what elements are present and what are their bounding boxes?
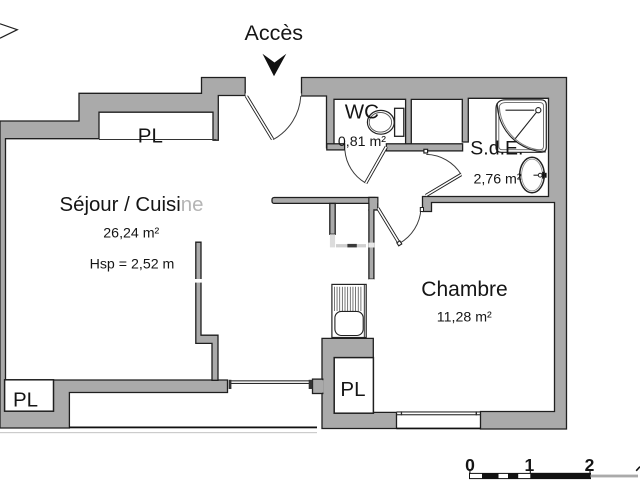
- svg-text:PL: PL: [13, 388, 38, 411]
- svg-text:PL: PL: [340, 378, 365, 401]
- svg-text:Séjour / Cuisine: Séjour / Cuisine: [60, 194, 204, 216]
- svg-text:WC: WC: [345, 100, 379, 123]
- svg-text:1: 1: [525, 455, 535, 475]
- svg-text:PL: PL: [138, 125, 163, 148]
- svg-text:0: 0: [465, 455, 475, 475]
- svg-text:2: 2: [585, 455, 595, 475]
- svg-text:2,76 m²: 2,76 m²: [474, 171, 522, 187]
- svg-text:Accès: Accès: [245, 21, 304, 45]
- svg-text:Chambre: Chambre: [421, 278, 507, 301]
- svg-text:11,28 m²: 11,28 m²: [437, 310, 492, 326]
- svg-text:26,24 m²: 26,24 m²: [103, 226, 159, 242]
- svg-text:0,81 m²: 0,81 m²: [338, 134, 386, 150]
- svg-text:S.d.E.: S.d.E.: [470, 138, 523, 160]
- svg-text:Hsp = 2,52 m: Hsp = 2,52 m: [90, 256, 175, 272]
